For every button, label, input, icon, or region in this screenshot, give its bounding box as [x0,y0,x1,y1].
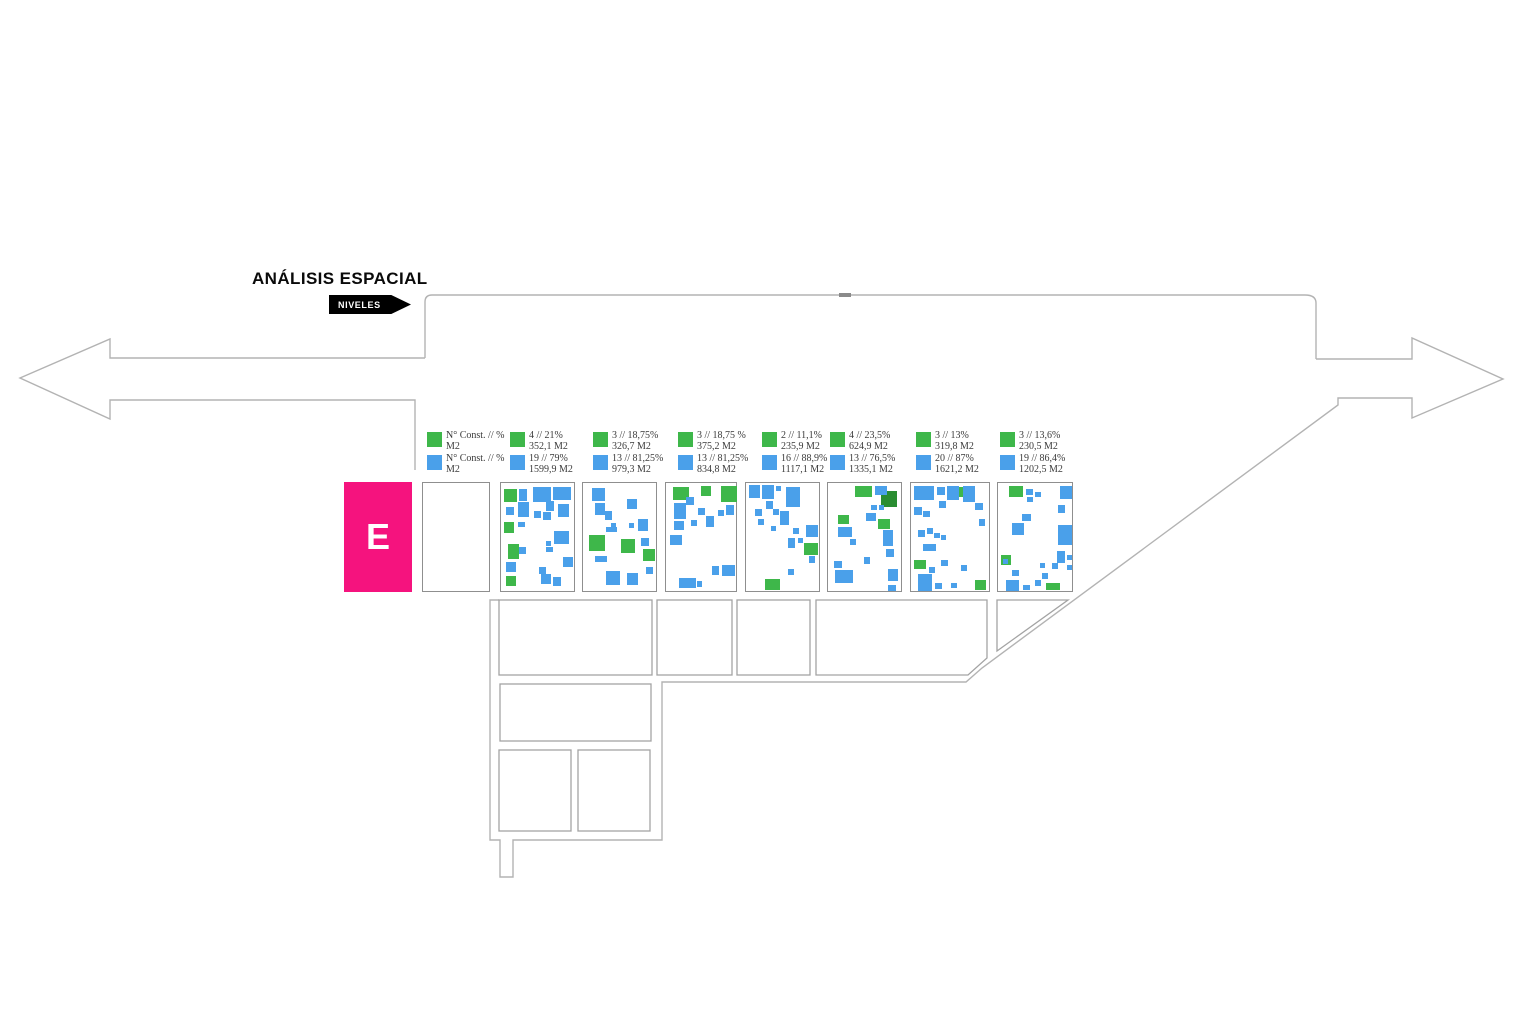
building-block [886,549,894,557]
green-swatch-icon [510,432,525,447]
building-block [589,535,605,551]
building-block [1027,497,1033,502]
building-block [674,521,684,530]
blue-swatch-icon [593,455,608,470]
blue-swatch-icon [678,455,693,470]
legend-level-7-blue-label: 19 // 86,4%1202,5 M2 [1019,454,1065,475]
building-block [961,565,967,571]
legend-header-green-label: N° Const. // %M2 [446,431,504,452]
legend-level-5-blue-label: 13 // 76,5%1335,1 M2 [849,454,895,475]
building-block [519,489,527,501]
blue-swatch-icon [427,455,442,470]
building-block [1060,486,1072,499]
building-block [888,585,896,591]
building-block [627,499,637,509]
building-block [855,486,872,497]
building-block [504,522,514,533]
building-block [935,583,942,589]
blue-swatch-icon [510,455,525,470]
building-block [941,560,948,566]
legend-level-1-green-label: 4 // 21%352,1 M2 [529,431,568,452]
building-block [1023,585,1030,590]
building-block [605,511,612,520]
green-swatch-icon [1000,432,1015,447]
building-block [546,547,553,552]
building-block [963,486,975,502]
block-outline-g [578,750,650,831]
level-panel-4 [745,482,820,592]
building-block [798,538,803,543]
building-block [539,567,546,574]
building-block [835,570,853,583]
building-block [1057,551,1065,563]
building-block [629,523,634,528]
building-block [722,565,735,576]
building-block [643,549,655,561]
green-swatch-icon [762,432,777,447]
building-block [850,539,856,545]
building-block [621,539,635,553]
building-block [504,489,517,502]
block-outline-b [657,600,732,675]
building-block [691,520,697,526]
block-outline-c [737,600,810,675]
building-block [765,579,780,590]
building-block [780,511,789,525]
building-block [1040,563,1045,568]
building-block [866,513,876,521]
building-block [975,580,986,590]
building-block [947,486,959,500]
building-block [627,573,638,585]
block-outline-triangle [997,600,1068,651]
building-block [834,561,842,568]
building-block [670,535,682,545]
top-band-center-tick [839,293,851,297]
building-block [533,487,551,502]
building-block [918,530,925,537]
level-panel-2 [582,482,657,592]
building-block [975,503,983,510]
building-block [766,501,773,509]
building-block [1003,559,1008,564]
legend-level-5-green-label: 4 // 23,5%624,9 M2 [849,431,890,452]
legend-level-4-green-label: 2 // 11,1%235,9 M2 [781,431,822,452]
building-block [546,541,551,546]
building-block [883,530,893,546]
building-block [518,502,529,517]
building-block [1012,570,1019,576]
blue-swatch-icon [830,455,845,470]
building-block [773,509,779,515]
building-block [914,507,922,515]
green-swatch-icon [916,432,931,447]
legend-level-3-green-label: 3 // 18,75 %375,2 M2 [697,431,746,452]
building-block [1026,489,1033,495]
building-block [558,504,569,517]
block-outline-a [499,600,652,675]
building-block [758,519,764,525]
building-block [701,486,711,496]
building-block [519,547,526,554]
block-outline-f [499,750,571,831]
building-block [864,557,870,564]
building-block [553,487,571,500]
level-marker-label: E [366,516,390,558]
building-block [679,578,696,588]
building-block [718,510,724,516]
building-block [809,556,815,563]
building-block [771,526,776,531]
building-block [1012,523,1024,535]
building-block [506,507,514,515]
building-block [592,488,605,501]
building-block [595,503,605,515]
building-block [1046,583,1060,590]
building-block [553,577,561,586]
building-block [788,538,795,548]
building-block [776,486,781,491]
building-block [686,497,694,505]
building-block [914,486,934,500]
building-block [1022,514,1031,521]
building-block [749,485,760,498]
building-block [1035,580,1041,586]
building-block [871,505,877,510]
building-block [518,522,525,527]
building-block [546,501,554,511]
building-block [762,485,774,499]
level-panel-1 [500,482,575,592]
level-panel-3 [665,482,737,592]
building-block [1009,486,1023,497]
building-block [606,527,617,532]
building-block [941,535,946,540]
building-block [534,511,541,518]
green-swatch-icon [593,432,608,447]
building-block [1058,525,1072,545]
legend-level-4-blue-label: 16 // 88,9%1117,1 M2 [781,454,827,475]
building-block [554,531,569,544]
building-block [706,516,714,527]
legend-level-6-green-label: 3 // 13%319,8 M2 [935,431,974,452]
page-title: ANÁLISIS ESPACIAL [252,269,428,289]
building-block [875,486,887,495]
building-block [1067,565,1072,570]
building-block [697,581,702,587]
building-block [979,519,985,526]
left-arrow [20,339,425,470]
building-block [646,567,653,574]
building-block [506,562,516,572]
building-block [914,560,926,569]
legend-header-blue-label: N° Const. // %M2 [446,454,504,475]
building-block [712,566,719,575]
building-block [793,528,799,534]
building-block [937,487,945,495]
building-block [726,505,734,515]
building-block [595,556,607,562]
analysis-board: ANÁLISIS ESPACIAL NIVELES E N° Const. //… [0,0,1515,1014]
building-block [1035,492,1041,497]
green-swatch-icon [830,432,845,447]
level-panel-6 [910,482,990,592]
building-block [543,512,551,520]
building-block [755,509,762,516]
building-block [878,519,890,529]
building-block [638,519,648,531]
building-block [641,538,649,546]
building-block [929,567,935,573]
niveles-tag-label: NIVELES [338,300,381,310]
building-block [804,543,818,555]
building-block [888,569,898,581]
building-block [1006,580,1019,591]
building-block [923,544,936,551]
building-block [918,574,932,591]
blue-swatch-icon [762,455,777,470]
reference-panel-empty [422,482,490,592]
building-block [879,505,884,510]
building-block [786,487,800,507]
level-panel-7 [997,482,1073,592]
blue-swatch-icon [916,455,931,470]
building-block [1067,555,1072,560]
blue-swatch-icon [1000,455,1015,470]
building-block [923,511,930,517]
block-outline-d [816,600,987,675]
building-block [838,527,852,537]
building-block [606,571,620,585]
green-swatch-icon [427,432,442,447]
building-block [721,486,737,502]
building-block [541,574,551,584]
building-block [951,583,957,588]
building-block [674,503,686,519]
building-block [1058,505,1065,513]
building-block [563,557,573,567]
level-panel-5 [827,482,902,592]
building-block [806,525,818,537]
building-block [1052,563,1058,569]
building-block [788,569,794,575]
legend-level-3-blue-label: 13 // 81,25%834,8 M2 [697,454,748,475]
legend-level-1-blue-label: 19 // 79%1599,9 M2 [529,454,573,475]
block-outline-e [500,684,651,741]
building-block [927,528,933,534]
legend-level-6-blue-label: 20 // 87%1621,2 M2 [935,454,979,475]
building-block [838,515,849,524]
building-block [698,508,705,515]
legend-level-7-green-label: 3 // 13,6%230,5 M2 [1019,431,1060,452]
green-swatch-icon [678,432,693,447]
legend-level-2-green-label: 3 // 18,75%326,7 M2 [612,431,658,452]
level-marker: E [344,482,412,592]
building-block [506,576,516,586]
site-top-band-outline [425,295,1316,359]
building-block [508,544,519,559]
legend-level-2-blue-label: 13 // 81,25%979,3 M2 [612,454,663,475]
building-block [939,501,946,508]
building-block [934,533,940,538]
building-block [1042,573,1048,579]
